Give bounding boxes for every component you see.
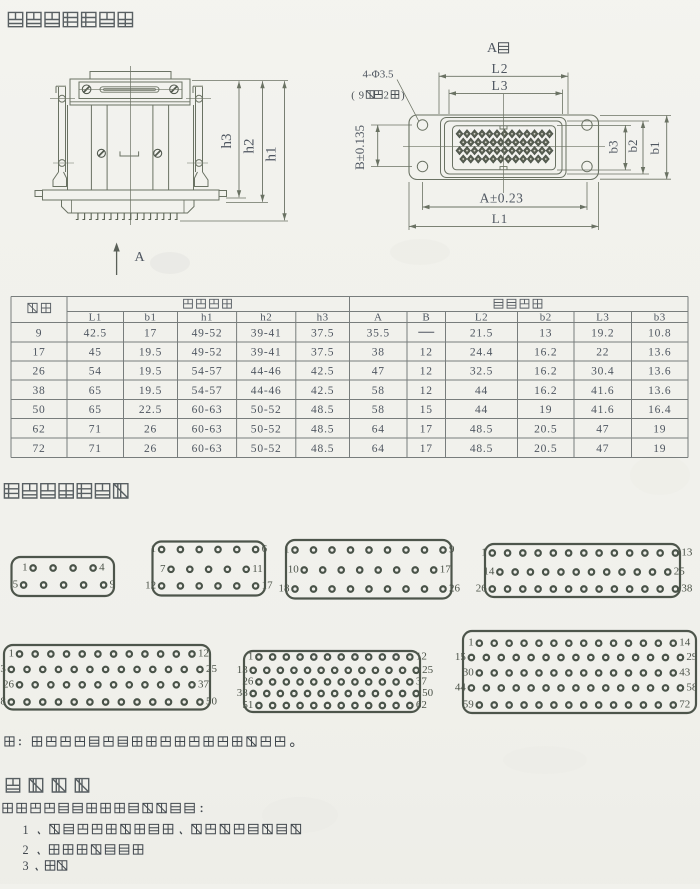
svg-text:1: 1 bbox=[481, 547, 487, 559]
svg-text:47: 47 bbox=[596, 443, 609, 455]
svg-text:L3: L3 bbox=[492, 78, 509, 93]
svg-text:17: 17 bbox=[440, 564, 452, 576]
svg-text:42.5: 42.5 bbox=[311, 366, 334, 378]
svg-text:54-57: 54-57 bbox=[192, 385, 223, 397]
svg-text:1: 1 bbox=[248, 651, 254, 663]
svg-text:49-52: 49-52 bbox=[192, 347, 223, 359]
svg-text:39-41: 39-41 bbox=[251, 327, 282, 339]
svg-text:B: B bbox=[422, 312, 430, 324]
svg-text:38: 38 bbox=[372, 347, 385, 359]
svg-text:h2: h2 bbox=[260, 312, 272, 324]
svg-text:48.5: 48.5 bbox=[311, 443, 334, 455]
svg-text:1: 1 bbox=[151, 543, 157, 555]
svg-text:64: 64 bbox=[372, 423, 385, 435]
svg-text:13.6: 13.6 bbox=[648, 385, 671, 397]
svg-text:A±0.23: A±0.23 bbox=[480, 191, 524, 206]
svg-text:7: 7 bbox=[160, 563, 166, 575]
svg-text:B±0.135: B±0.135 bbox=[352, 125, 367, 170]
svg-text:71: 71 bbox=[89, 423, 102, 435]
svg-text:h1: h1 bbox=[264, 147, 280, 162]
svg-text:19.5: 19.5 bbox=[139, 366, 162, 378]
svg-text:9: 9 bbox=[449, 544, 455, 556]
svg-text:L1: L1 bbox=[492, 211, 508, 226]
svg-text:50-52: 50-52 bbox=[251, 443, 282, 455]
svg-text:51: 51 bbox=[242, 699, 253, 711]
svg-text:64: 64 bbox=[372, 443, 385, 455]
svg-text:9: 9 bbox=[36, 327, 43, 339]
svg-text:1: 1 bbox=[9, 648, 15, 660]
svg-text:h1: h1 bbox=[201, 312, 213, 324]
svg-text:62: 62 bbox=[416, 699, 427, 711]
svg-text:38: 38 bbox=[32, 385, 45, 397]
svg-text:17: 17 bbox=[32, 347, 45, 359]
svg-text:60-63: 60-63 bbox=[192, 423, 223, 435]
svg-text:13: 13 bbox=[539, 327, 552, 339]
svg-text:26: 26 bbox=[242, 675, 254, 687]
svg-text:26: 26 bbox=[144, 423, 157, 435]
svg-text:4: 4 bbox=[99, 562, 105, 574]
svg-text:12: 12 bbox=[198, 648, 209, 660]
svg-text:65: 65 bbox=[89, 404, 102, 416]
svg-text:21.5: 21.5 bbox=[470, 327, 493, 339]
svg-text:60-63: 60-63 bbox=[192, 443, 223, 455]
svg-text:54: 54 bbox=[89, 366, 102, 378]
svg-text:15: 15 bbox=[420, 404, 433, 416]
svg-text:1: 1 bbox=[22, 823, 28, 837]
svg-text:25: 25 bbox=[422, 664, 434, 676]
svg-text:37.5: 37.5 bbox=[311, 347, 334, 359]
svg-text:44: 44 bbox=[475, 385, 488, 397]
svg-text:45: 45 bbox=[89, 347, 102, 359]
svg-text:38: 38 bbox=[0, 696, 6, 708]
svg-text:50: 50 bbox=[422, 687, 434, 699]
svg-text:20.5: 20.5 bbox=[534, 423, 557, 435]
svg-text:b3: b3 bbox=[606, 141, 621, 154]
svg-text:12: 12 bbox=[420, 385, 433, 397]
svg-text:b1: b1 bbox=[647, 142, 662, 155]
svg-text:25: 25 bbox=[674, 566, 686, 578]
svg-text:24.4: 24.4 bbox=[470, 347, 493, 359]
svg-text:2: 2 bbox=[22, 843, 28, 857]
svg-text:26: 26 bbox=[3, 678, 15, 690]
svg-text:A: A bbox=[134, 250, 145, 265]
svg-text:9: 9 bbox=[359, 90, 364, 101]
svg-text:30.4: 30.4 bbox=[591, 366, 614, 378]
svg-text:17: 17 bbox=[420, 423, 433, 435]
svg-text:A: A bbox=[374, 312, 382, 324]
svg-text:22: 22 bbox=[596, 347, 609, 359]
svg-text:41.6: 41.6 bbox=[591, 385, 614, 397]
svg-text:59: 59 bbox=[463, 699, 475, 711]
svg-text:32.5: 32.5 bbox=[470, 366, 493, 378]
svg-text:16.4: 16.4 bbox=[648, 404, 671, 416]
svg-text:50: 50 bbox=[32, 404, 45, 416]
svg-text:12: 12 bbox=[416, 651, 427, 663]
svg-text:16.2: 16.2 bbox=[534, 366, 557, 378]
svg-text:16.2: 16.2 bbox=[534, 385, 557, 397]
svg-text:19.5: 19.5 bbox=[139, 347, 162, 359]
svg-text:54-57: 54-57 bbox=[192, 366, 223, 378]
svg-text:50: 50 bbox=[206, 696, 218, 708]
svg-text:42.5: 42.5 bbox=[311, 385, 334, 397]
svg-text:3: 3 bbox=[22, 859, 28, 873]
svg-text:h3: h3 bbox=[219, 134, 235, 149]
svg-text:41.6: 41.6 bbox=[591, 404, 614, 416]
svg-text:6: 6 bbox=[262, 543, 268, 555]
svg-text:19.2: 19.2 bbox=[591, 327, 614, 339]
svg-text:13: 13 bbox=[681, 547, 693, 559]
svg-text:37: 37 bbox=[198, 678, 210, 690]
svg-text:(: ( bbox=[351, 90, 355, 101]
svg-text:12: 12 bbox=[420, 347, 433, 359]
svg-text:48.5: 48.5 bbox=[470, 443, 493, 455]
svg-text:L2: L2 bbox=[492, 61, 509, 76]
svg-text:39-41: 39-41 bbox=[251, 347, 282, 359]
svg-text:50-52: 50-52 bbox=[251, 423, 282, 435]
svg-text:72: 72 bbox=[32, 443, 45, 455]
svg-text:37.5: 37.5 bbox=[311, 327, 334, 339]
svg-text:19: 19 bbox=[653, 423, 666, 435]
svg-text:44-46: 44-46 bbox=[251, 366, 282, 378]
svg-text:1: 1 bbox=[468, 637, 474, 649]
svg-text:13.6: 13.6 bbox=[648, 366, 671, 378]
svg-text:48.5: 48.5 bbox=[311, 404, 334, 416]
svg-text:49-52: 49-52 bbox=[192, 327, 223, 339]
svg-text:26: 26 bbox=[449, 583, 461, 595]
svg-text:62: 62 bbox=[32, 423, 45, 435]
svg-text:h3: h3 bbox=[317, 312, 329, 324]
svg-text:58: 58 bbox=[372, 404, 385, 416]
svg-text:17: 17 bbox=[262, 579, 274, 591]
svg-text:h2: h2 bbox=[242, 139, 258, 154]
svg-text:4-Φ3.5: 4-Φ3.5 bbox=[363, 69, 394, 81]
svg-text:14: 14 bbox=[679, 637, 691, 649]
svg-text:9: 9 bbox=[110, 579, 116, 591]
svg-text:15: 15 bbox=[455, 651, 467, 663]
svg-text:26: 26 bbox=[476, 583, 488, 595]
svg-text:44: 44 bbox=[475, 404, 488, 416]
svg-text:L1: L1 bbox=[89, 312, 102, 324]
svg-text:17: 17 bbox=[144, 327, 157, 339]
svg-text:19.5: 19.5 bbox=[139, 385, 162, 397]
svg-text:38: 38 bbox=[681, 583, 693, 595]
svg-text:38: 38 bbox=[237, 687, 249, 699]
svg-text:35.5: 35.5 bbox=[367, 327, 390, 339]
svg-text:10: 10 bbox=[288, 564, 300, 576]
svg-text:71: 71 bbox=[89, 443, 102, 455]
svg-text:16.2: 16.2 bbox=[534, 347, 557, 359]
svg-text:1: 1 bbox=[22, 562, 28, 574]
svg-text:19: 19 bbox=[653, 443, 666, 455]
svg-text:60-63: 60-63 bbox=[192, 404, 223, 416]
svg-text:14: 14 bbox=[483, 566, 495, 578]
svg-text:30: 30 bbox=[463, 666, 475, 678]
svg-text:26: 26 bbox=[32, 366, 45, 378]
svg-text:L3: L3 bbox=[596, 312, 609, 324]
svg-text:37: 37 bbox=[416, 675, 428, 687]
svg-text:20.5: 20.5 bbox=[534, 443, 557, 455]
svg-text:11: 11 bbox=[252, 563, 263, 575]
svg-text:2: 2 bbox=[384, 90, 389, 101]
svg-text:26: 26 bbox=[144, 443, 157, 455]
svg-text:58: 58 bbox=[372, 385, 385, 397]
svg-text:47: 47 bbox=[596, 423, 609, 435]
svg-text:50-52: 50-52 bbox=[251, 404, 282, 416]
svg-text:25: 25 bbox=[206, 663, 218, 675]
svg-text:b3: b3 bbox=[654, 312, 666, 324]
svg-text:72: 72 bbox=[679, 699, 690, 711]
svg-text:10.8: 10.8 bbox=[648, 327, 671, 339]
svg-text:1: 1 bbox=[284, 544, 290, 556]
svg-text:18: 18 bbox=[279, 583, 291, 595]
svg-text:12: 12 bbox=[420, 366, 433, 378]
svg-text:22.5: 22.5 bbox=[139, 404, 162, 416]
svg-text:12: 12 bbox=[145, 579, 156, 591]
svg-text:17: 17 bbox=[420, 443, 433, 455]
svg-text:5: 5 bbox=[13, 579, 19, 591]
svg-text:44-46: 44-46 bbox=[251, 385, 282, 397]
svg-text:58: 58 bbox=[686, 681, 698, 693]
svg-text:A: A bbox=[487, 41, 498, 56]
svg-text:13.6: 13.6 bbox=[648, 347, 671, 359]
svg-text:13: 13 bbox=[237, 664, 249, 676]
svg-text:42.5: 42.5 bbox=[84, 327, 107, 339]
svg-text:b2: b2 bbox=[540, 312, 552, 324]
svg-text:b2: b2 bbox=[625, 140, 640, 153]
svg-text:29: 29 bbox=[686, 651, 698, 663]
svg-text:43: 43 bbox=[679, 666, 691, 678]
svg-text:48.5: 48.5 bbox=[311, 423, 334, 435]
svg-text:b1: b1 bbox=[145, 312, 157, 324]
svg-text:L2: L2 bbox=[475, 312, 488, 324]
svg-text:47: 47 bbox=[372, 366, 385, 378]
svg-text:13: 13 bbox=[0, 663, 6, 675]
svg-text:19: 19 bbox=[539, 404, 552, 416]
svg-text:48.5: 48.5 bbox=[470, 423, 493, 435]
svg-text:44: 44 bbox=[455, 681, 467, 693]
svg-text:65: 65 bbox=[89, 385, 102, 397]
